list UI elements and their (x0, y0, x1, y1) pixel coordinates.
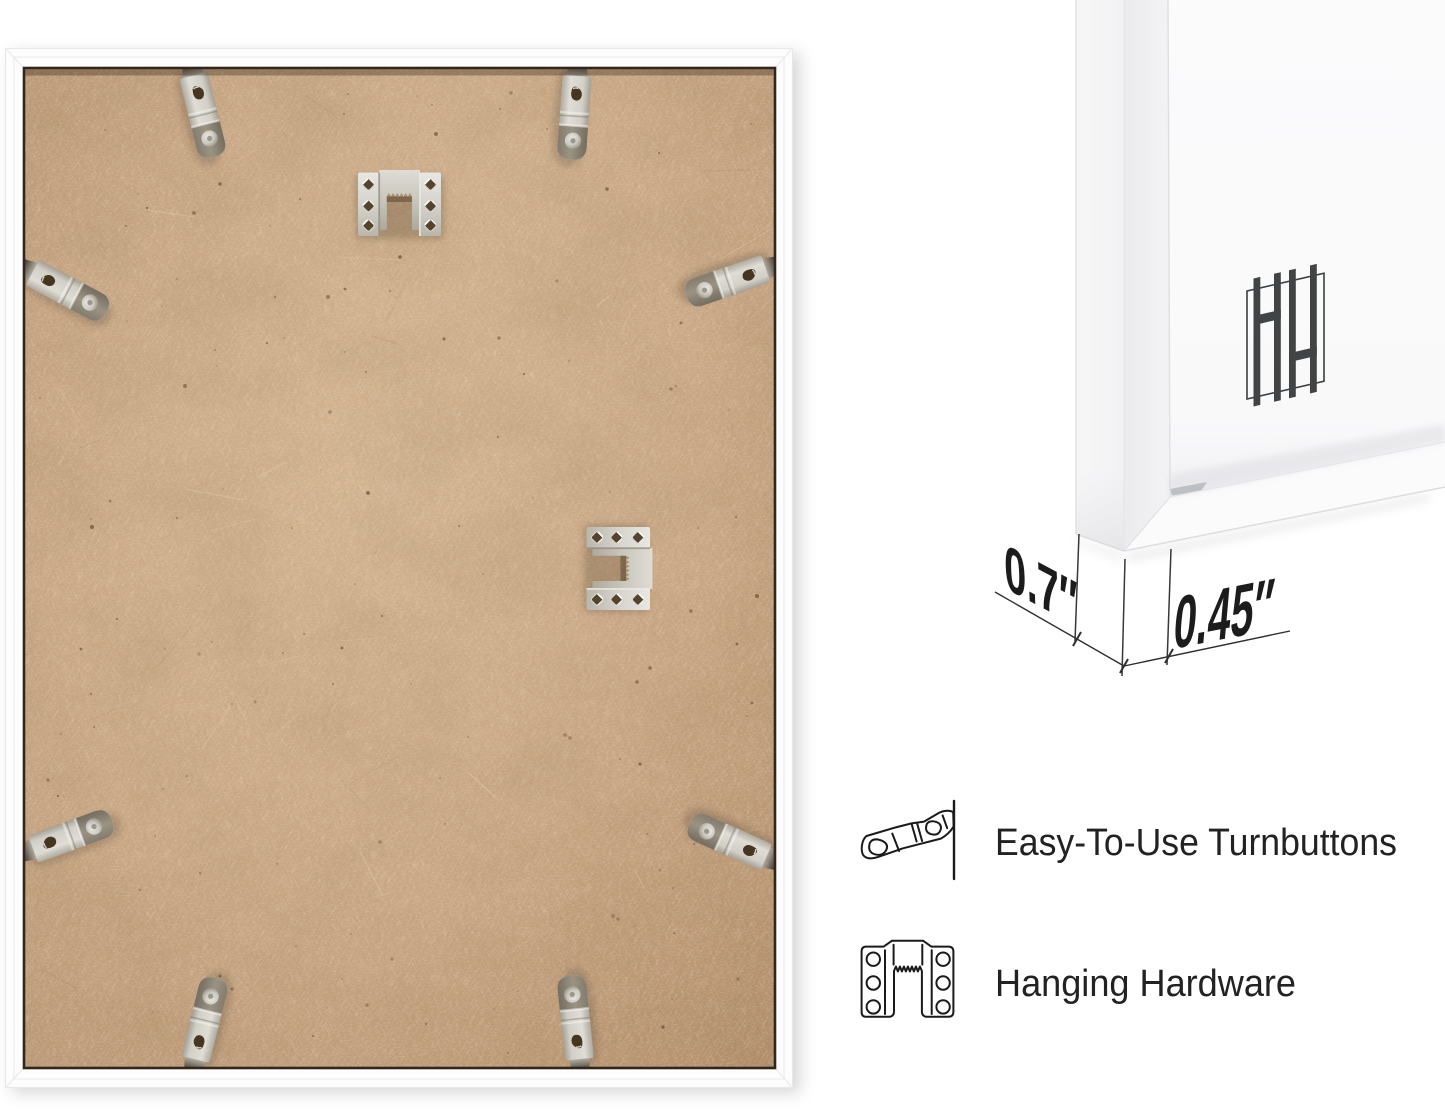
svg-text:Easy-To-Use Turnbuttons: Easy-To-Use Turnbuttons (995, 822, 1397, 864)
svg-text:Hanging Hardware: Hanging Hardware (995, 963, 1296, 1005)
